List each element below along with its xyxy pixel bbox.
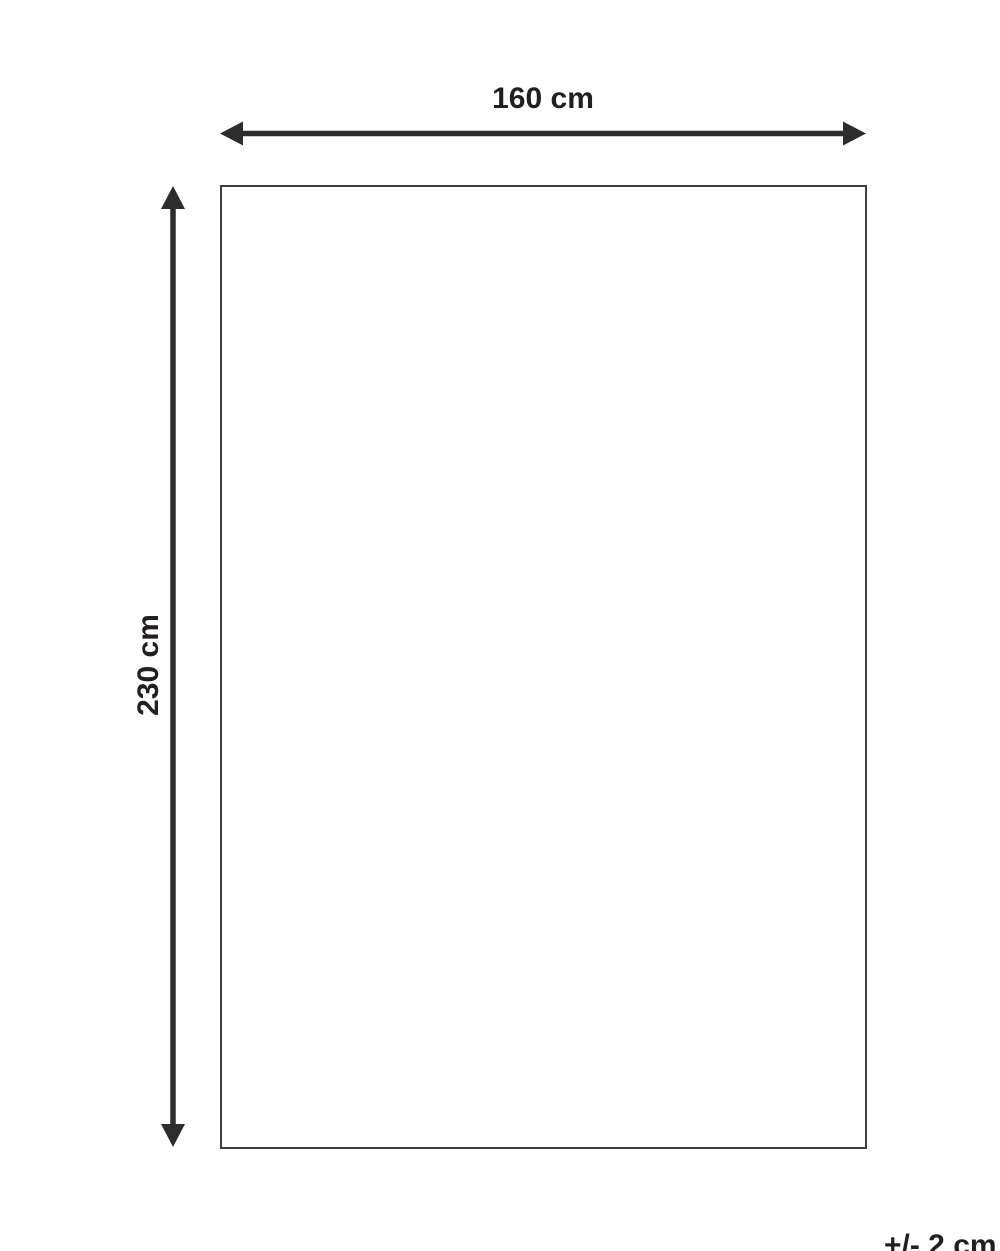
width-arrow-left-head-icon (220, 122, 243, 146)
tolerance-label: +/- 2 cm (884, 1231, 997, 1251)
width-label: 160 cm (220, 84, 866, 114)
height-arrow-top-head-icon (161, 186, 185, 209)
height-arrow-bottom-head-icon (161, 1124, 185, 1147)
width-arrow (220, 122, 866, 146)
width-arrow-right-head-icon (843, 122, 866, 146)
dimension-diagram: 160 cm 230 cm +/- 2 cm (0, 0, 1000, 1251)
product-outline-rect (221, 186, 866, 1148)
height-label: 230 cm (134, 605, 164, 725)
